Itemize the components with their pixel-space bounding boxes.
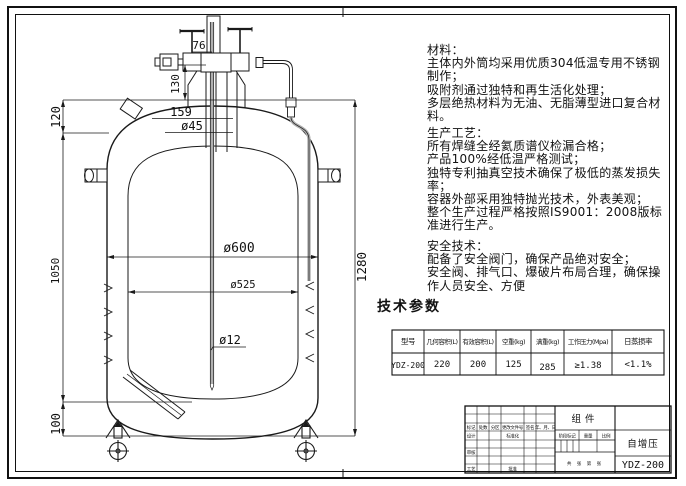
dim-total-height: 1280 xyxy=(354,252,369,282)
drawing-sheet: 76 130 120 159 ø45 1050 100 1280 ø600 ø5… xyxy=(0,0,686,486)
tb-part-name: 组件 xyxy=(571,413,598,425)
tb-rev-count: 处数 xyxy=(479,424,488,431)
param-val-model: YDZ-200 xyxy=(391,361,425,370)
tb-weight-label: 重量 xyxy=(584,433,593,440)
note-production-process: 生产工艺： 所有焊缝全经氦质谱仪检漏合格； 产品100%经低温严格测试； 独特专… xyxy=(427,127,675,233)
tb-scale-label: 比例 xyxy=(602,433,611,440)
param-col-geo-volume: 几何容积(L) xyxy=(426,337,457,346)
wall-chevrons xyxy=(104,282,314,364)
tb-model: YDZ-200 xyxy=(622,460,664,471)
tb-sheets-label: 共 张 第 张 xyxy=(567,460,603,467)
tank-drawing xyxy=(85,16,341,462)
param-val-empty-weight: 125 xyxy=(505,360,521,370)
note-materials: 材料： 主体内外筒均采用优质304低温专用不锈钢 制作； 吸附剂通过独特和再生活… xyxy=(427,44,675,123)
params-table-text: 型号 几何容积(L) 有效容积(L) 空重(kg) 满重(kg) 工作压力(Mp… xyxy=(391,336,653,373)
tb-process-label: 工艺 xyxy=(467,467,476,473)
tb-design-label: 设计 xyxy=(467,433,476,440)
param-col-evap-rate: 日蒸损率 xyxy=(624,336,653,346)
note-safety: 安全技术： 配备了安全阀门，确保产品绝对安全； 安全阀、排气口、爆破片布局合理，… xyxy=(427,240,675,293)
center-dip-tube xyxy=(210,22,213,390)
tb-check-label: 审核 xyxy=(467,449,476,456)
dim-flange-width: 159 xyxy=(170,105,192,119)
pressurization-pipe xyxy=(263,61,309,282)
dim-caster-height: 100 xyxy=(49,413,63,435)
tb-standard-label: 标准化 xyxy=(506,433,519,440)
dim-top-width: 76 xyxy=(192,39,205,52)
dim-inner-dia: ø525 xyxy=(230,279,255,291)
param-col-eff-volume: 有效容积(L) xyxy=(462,337,493,346)
valve-manifold xyxy=(201,53,231,72)
dim-outer-dia: ø600 xyxy=(223,241,254,256)
param-val-geo-volume: 220 xyxy=(434,360,450,370)
dim-tube-dia: ø12 xyxy=(219,333,241,347)
dimension-lines xyxy=(61,52,357,436)
top-fill-port xyxy=(120,98,142,119)
param-val-full-weight: 285 xyxy=(539,363,555,373)
tb-rev-docno: 更改文件号 xyxy=(502,424,524,431)
tb-stage-label: 阶段标记 xyxy=(559,433,577,440)
tb-rev-sign: 签名 xyxy=(526,424,534,431)
dim-neck-height: 130 xyxy=(169,74,182,94)
dimension-arrows xyxy=(61,65,357,436)
param-col-full-weight: 满重(kg) xyxy=(536,337,559,346)
tb-subtitle: 自增压 xyxy=(627,438,659,450)
tb-rev-zone: 分区 xyxy=(491,424,500,431)
param-val-work-pressure: ≥1.38 xyxy=(574,361,601,371)
param-col-work-pressure: 工作压力(Mpa) xyxy=(568,337,608,346)
tb-rev-date: 年、月、日 xyxy=(535,424,556,431)
right-valve xyxy=(228,27,263,71)
dimension-labels: 76 130 120 159 ø45 1050 100 1280 ø600 ø5… xyxy=(49,39,369,435)
pressure-gauge xyxy=(155,54,183,70)
dim-body-height: 1050 xyxy=(49,258,62,285)
dim-neck-dia: ø45 xyxy=(181,119,203,133)
tb-rev-mark: 标记 xyxy=(467,424,476,431)
dim-dome-height: 120 xyxy=(49,106,63,128)
param-val-evap-rate: <1.1% xyxy=(624,360,652,370)
tb-approve-label: 批准 xyxy=(508,466,517,473)
param-col-empty-weight: 空重(kg) xyxy=(502,337,525,346)
param-col-model: 型号 xyxy=(401,337,415,346)
params-heading: 技术参数 xyxy=(377,296,441,316)
bottom-fill-tube xyxy=(123,370,185,419)
titleblock-text: 标记 处数 分区 更改文件号 签名 年、月、日 设计 标准化 审核 工艺 批准 … xyxy=(467,413,664,473)
right-lug xyxy=(318,169,341,182)
param-val-eff-volume: 200 xyxy=(470,360,486,370)
left-lug xyxy=(85,169,108,182)
